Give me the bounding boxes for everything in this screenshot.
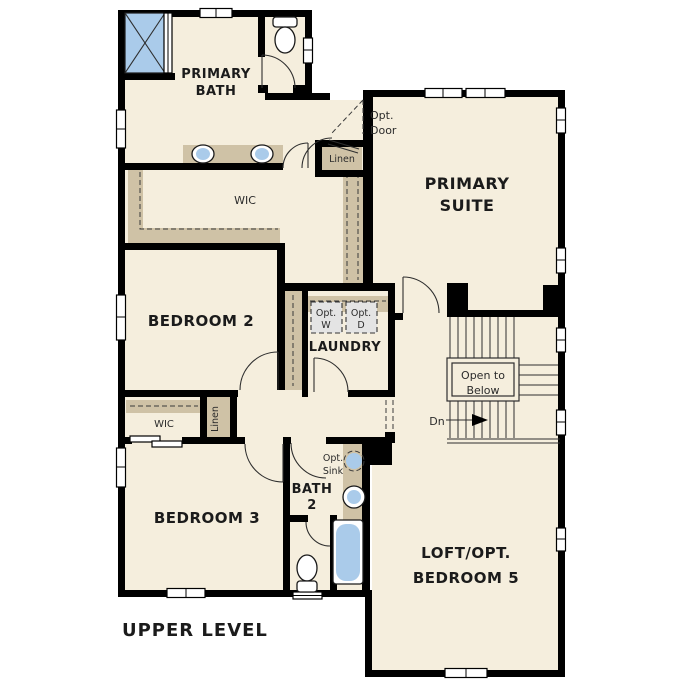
window: [445, 669, 487, 678]
wall-suite-bottom: [368, 283, 390, 290]
primary-suite-label-line2: SUITE: [440, 196, 495, 215]
window: [557, 410, 566, 435]
window: [117, 110, 126, 148]
vanity-sink-icon: [251, 145, 273, 163]
wall-bath-wic: [125, 163, 283, 170]
wall-laundry-bottom: [348, 390, 388, 397]
opt-sink-label-line2: Sink: [323, 466, 344, 477]
window: [200, 9, 232, 18]
wall-corridor-d: [326, 437, 362, 444]
stair-down-label: Dn: [429, 415, 444, 428]
wall-toilet-room-left: [258, 10, 265, 57]
wall-shower-bottom: [118, 73, 175, 80]
primary-bath-label-line1: PRIMARY: [181, 67, 251, 82]
wall-laundry-right: [388, 288, 395, 397]
wall-vestibule-stub: [390, 313, 403, 320]
window: [557, 528, 566, 551]
bathtub-icon: [333, 520, 363, 584]
shower-icon: [125, 13, 172, 73]
toilet-icon: [273, 17, 297, 53]
loft-label-line2: BEDROOM 5: [413, 569, 519, 587]
wall-laundry-left: [302, 291, 308, 397]
window: [304, 38, 313, 63]
opt-sink-label-line1: Opt.: [323, 453, 343, 464]
toilet-icon: [297, 555, 317, 592]
hall-linen-label: Linen: [210, 406, 221, 432]
wall-exterior-right: [558, 90, 565, 677]
window: [557, 328, 566, 352]
wall-loft-left: [365, 590, 372, 677]
opt-washer-label-line1: Opt.: [316, 308, 336, 319]
wall-wic-bedroom2: [118, 243, 285, 250]
wall-suite-top: [363, 90, 565, 97]
window: [557, 108, 566, 133]
bedroom2-label: BEDROOM 2: [148, 312, 254, 330]
wic-shelf-bottom: [128, 228, 280, 243]
window: [293, 592, 322, 599]
wall-corridor-c: [283, 437, 291, 444]
wall-toilet-room-bottom-b: [293, 85, 312, 93]
opt-washer-label-line2: W: [321, 320, 331, 331]
suite-hall-closet-shelf: [343, 170, 365, 283]
wall-bedroom3-bottom: [118, 590, 370, 597]
window: [117, 448, 126, 487]
primary-suite-floor: [368, 97, 558, 290]
window: [466, 89, 505, 98]
window: [117, 295, 126, 340]
wall-bath2-mid: [290, 515, 308, 522]
window: [167, 589, 205, 598]
bath2-label-line1: BATH: [292, 482, 333, 497]
wic2-label: WIC: [154, 419, 174, 430]
wall-hall-linen-left: [200, 397, 207, 443]
opt-dryer-label-line2: D: [357, 320, 364, 331]
floor-plan-canvas: PRIMARY BATH WIC Linen Opt. Door PRIMARY…: [0, 0, 687, 687]
laundry-label: LAUNDRY: [309, 340, 381, 355]
primary-linen-label: Linen: [329, 154, 355, 165]
loft-stair-floor: [372, 290, 558, 670]
opt-door-label-line1: Opt.: [370, 109, 393, 122]
open-to-below-label-line1: Open to: [461, 369, 505, 382]
plan-title: UPPER LEVEL: [122, 620, 268, 641]
window: [557, 248, 566, 273]
floor-plan-drawing: PRIMARY BATH WIC Linen Opt. Door PRIMARY…: [0, 0, 687, 687]
wall-hall-linen-right: [230, 397, 237, 443]
bath2-label-line2: 2: [307, 498, 317, 513]
bedroom3-label: BEDROOM 3: [154, 509, 260, 527]
wall-toilet-room-bottom-a: [258, 85, 268, 93]
primary-wic-label: WIC: [234, 194, 256, 207]
wall-bath-hall-top: [265, 93, 330, 100]
primary-bath-label-line2: BATH: [196, 84, 237, 99]
wall-stair-top: [447, 310, 565, 317]
window: [425, 89, 462, 98]
wall-corridor-b: [182, 437, 245, 444]
primary-suite-label-line1: PRIMARY: [425, 174, 510, 193]
wall-linen-bottom: [315, 170, 365, 177]
opt-dryer-label-line1: Opt.: [351, 308, 371, 319]
vanity-sink-icon: [192, 145, 214, 163]
bath2-sink-icon: [343, 486, 365, 508]
wall-bedroom3-bath2: [283, 444, 290, 590]
loft-label-line1: LOFT/OPT.: [421, 544, 511, 562]
open-to-below-label-line2: Below: [466, 384, 499, 397]
opt-door-label-line2: Door: [370, 124, 397, 137]
wall-bedroom2-bottom: [118, 390, 238, 397]
